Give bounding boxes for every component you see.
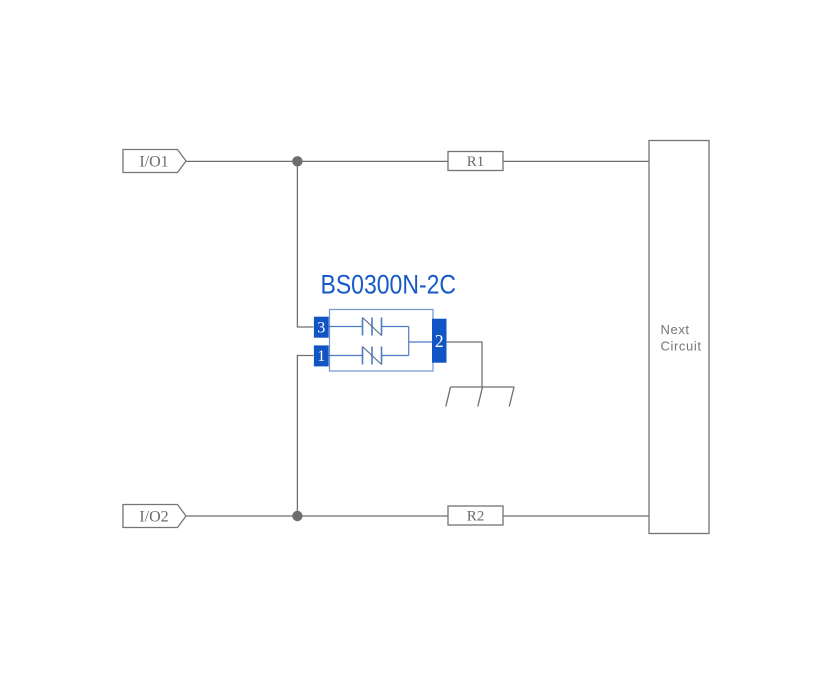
svg-text:R2: R2 — [467, 509, 485, 525]
svg-text:3: 3 — [317, 320, 325, 337]
svg-text:2: 2 — [435, 331, 444, 351]
svg-text:Circuit: Circuit — [661, 339, 702, 354]
svg-text:Next: Next — [661, 322, 690, 337]
svg-text:R1: R1 — [467, 154, 485, 170]
svg-text:1: 1 — [317, 348, 325, 365]
svg-text:I/O1: I/O1 — [139, 154, 168, 171]
svg-text:I/O2: I/O2 — [139, 509, 168, 526]
svg-text:BS0300N-2C: BS0300N-2C — [321, 270, 457, 300]
